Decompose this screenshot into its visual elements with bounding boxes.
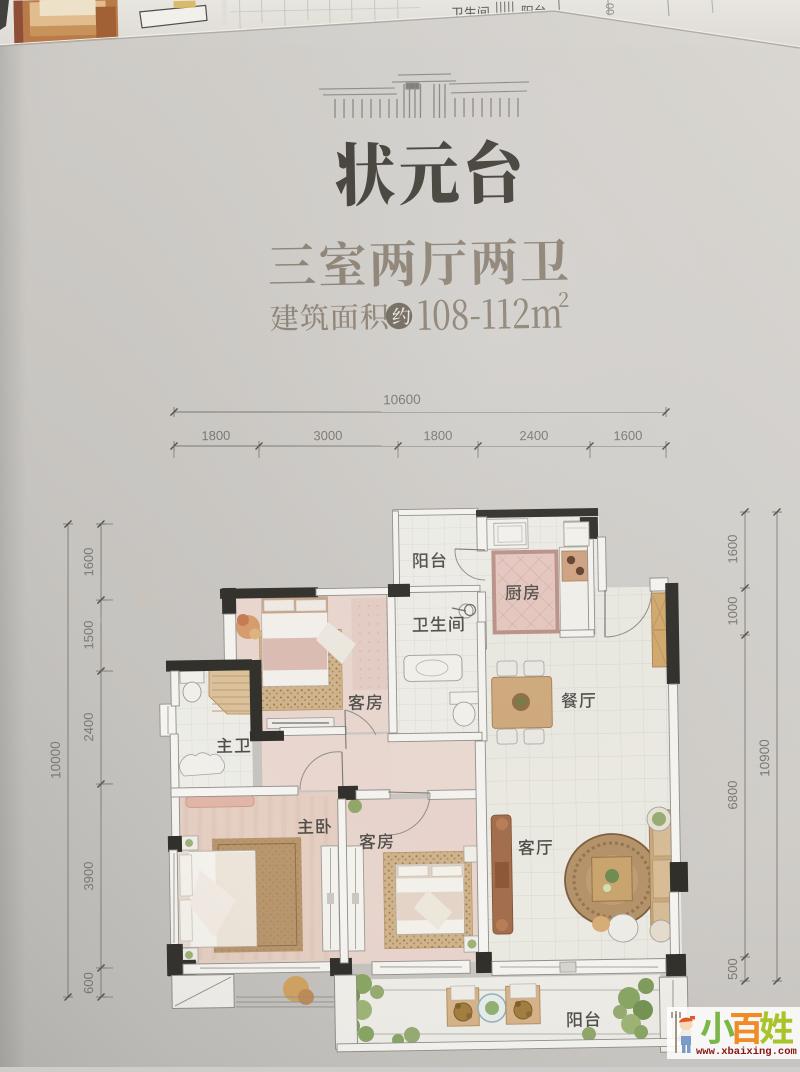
svg-text:www.xbaixing.com: www.xbaixing.com — [696, 1046, 797, 1058]
